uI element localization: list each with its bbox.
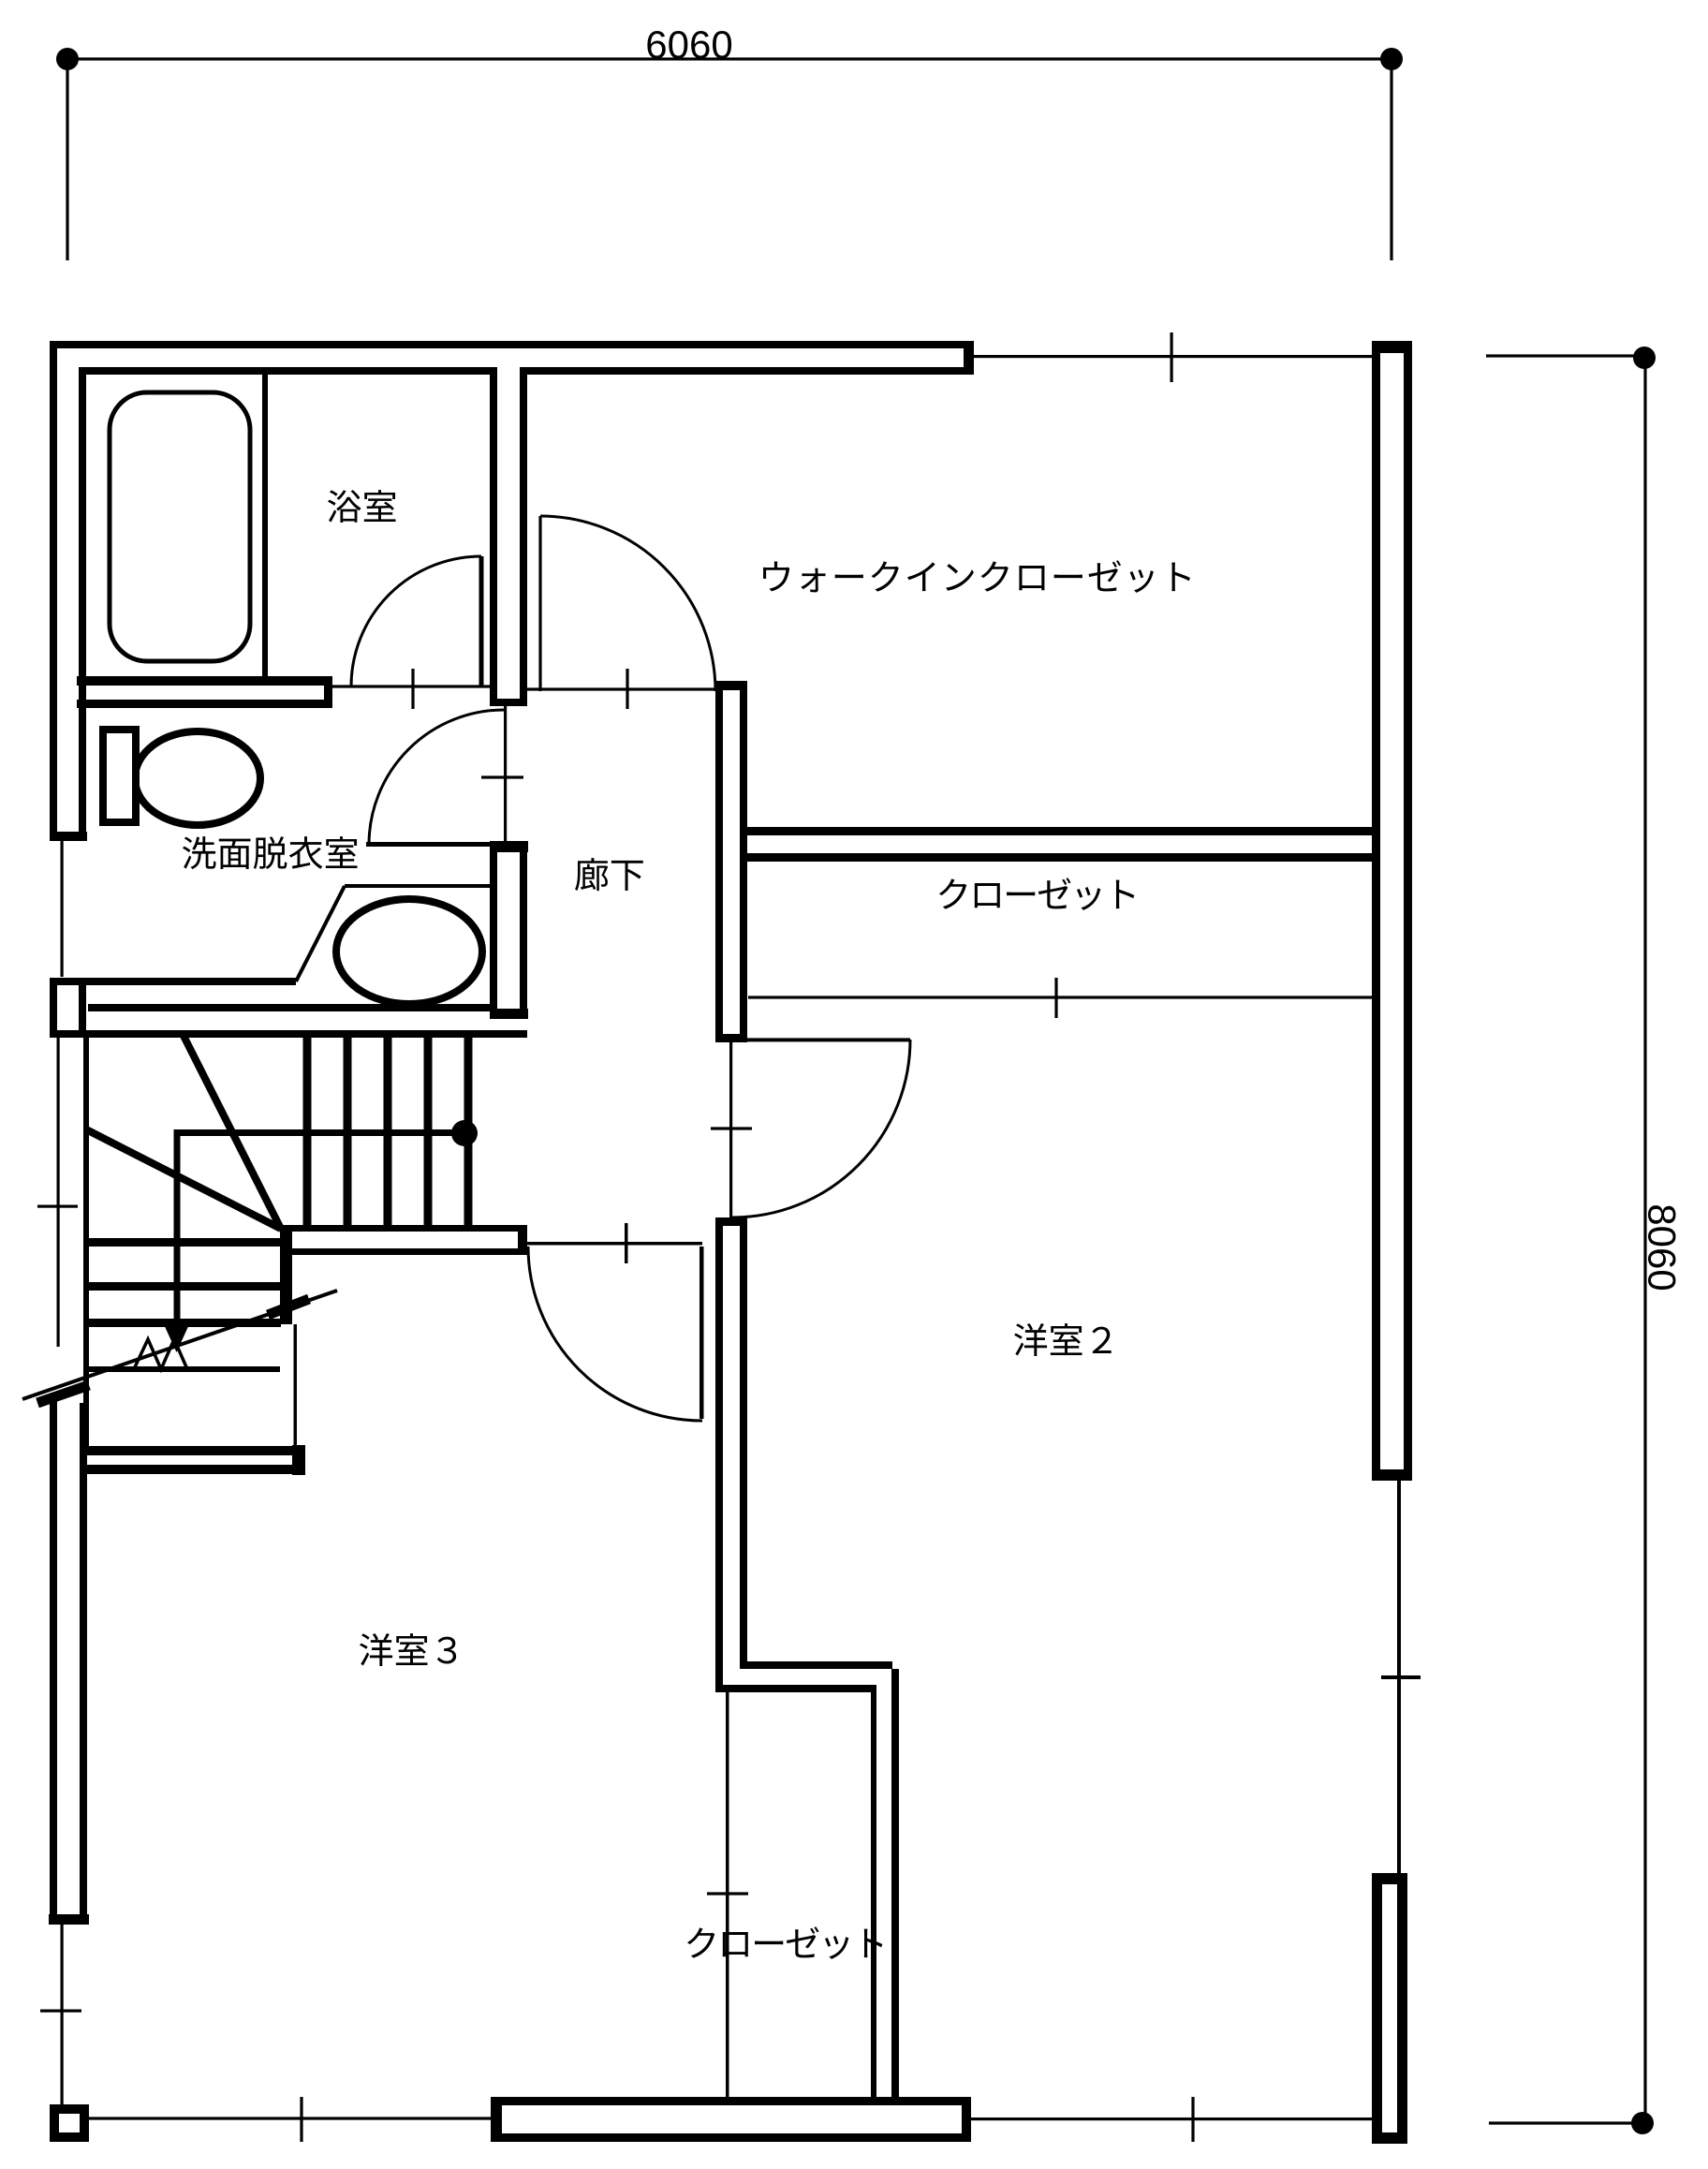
svg-text:6060: 6060 — [645, 22, 732, 66]
svg-text:8060: 8060 — [1641, 1203, 1685, 1291]
